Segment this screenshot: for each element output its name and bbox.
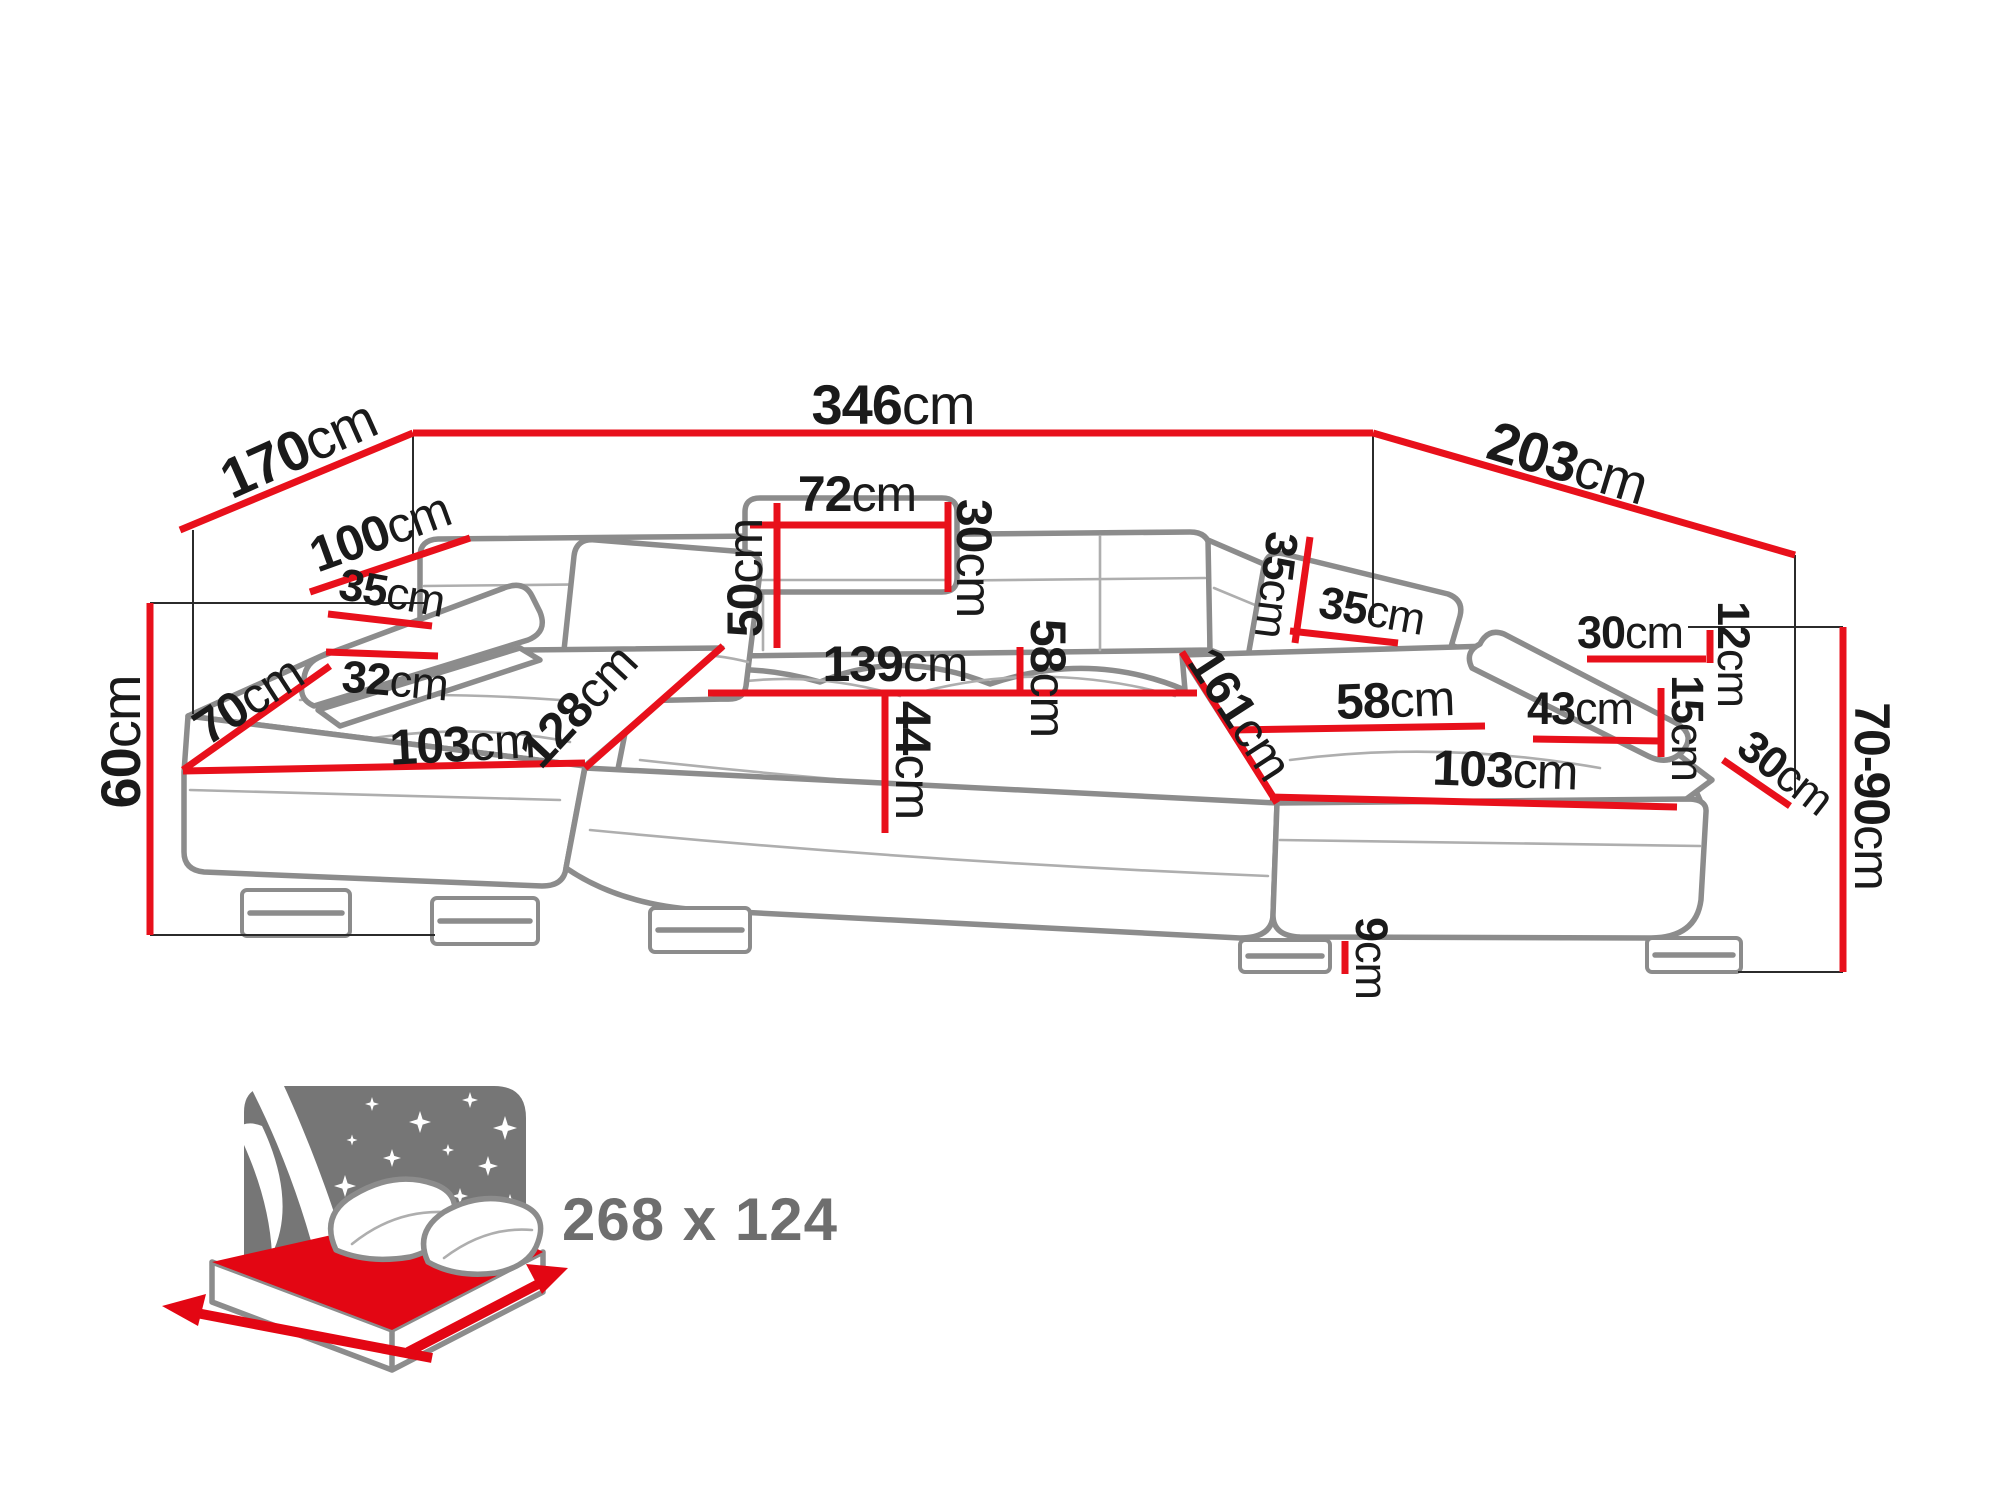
dim-label-right-armrest-length: 43cm xyxy=(1527,683,1633,734)
dim-label-middle-seat-width: 139cm xyxy=(822,636,967,692)
dim-line-right-armrest-length xyxy=(1533,739,1660,741)
dim-label-right-armrest-top: 30cm xyxy=(1577,607,1683,658)
dim-label-left-armrest-drop: 32cm xyxy=(340,650,450,710)
dim-label-headrest-width: 72cm xyxy=(798,466,916,522)
dim-label-seat-height: 44cm xyxy=(885,701,941,819)
right-chaise-base xyxy=(1273,799,1706,938)
bed-size-label: 268 x 124 xyxy=(562,1186,838,1253)
dim-label-left-height: 60cm xyxy=(89,676,152,809)
bed-icon: 268 x 124 xyxy=(162,1086,838,1370)
dim-label-right-seat-depth: 58cm xyxy=(1335,670,1455,730)
dim-label-left-back-width: 170cm xyxy=(211,386,386,510)
dim-label-right-armrest-side: 15cm xyxy=(1663,675,1714,781)
dim-label-right-chaise-length: 103cm xyxy=(1432,739,1579,800)
dim-label-headrest-depth: 30cm xyxy=(946,499,1002,617)
dim-label-right-armrest-width: 30cm xyxy=(1729,719,1844,824)
dim-label-right-back-width: 203cm xyxy=(1481,408,1655,516)
dim-label-headrest-height: 50cm xyxy=(717,519,773,637)
dim-label-middle-seat-depth: 58cm xyxy=(1020,619,1076,737)
dim-label-total-width: 346cm xyxy=(811,373,974,436)
dim-label-right-height-range: 70-90cm xyxy=(1844,702,1900,890)
sofa-dimension-diagram: 346cm 170cm 203cm 100cm 35cm 32cm 70cm 6… xyxy=(0,0,2000,1500)
dim-label-right-armrest-edge: 12cm xyxy=(1709,601,1760,707)
dim-label-leg-height: 9cm xyxy=(1347,917,1398,999)
